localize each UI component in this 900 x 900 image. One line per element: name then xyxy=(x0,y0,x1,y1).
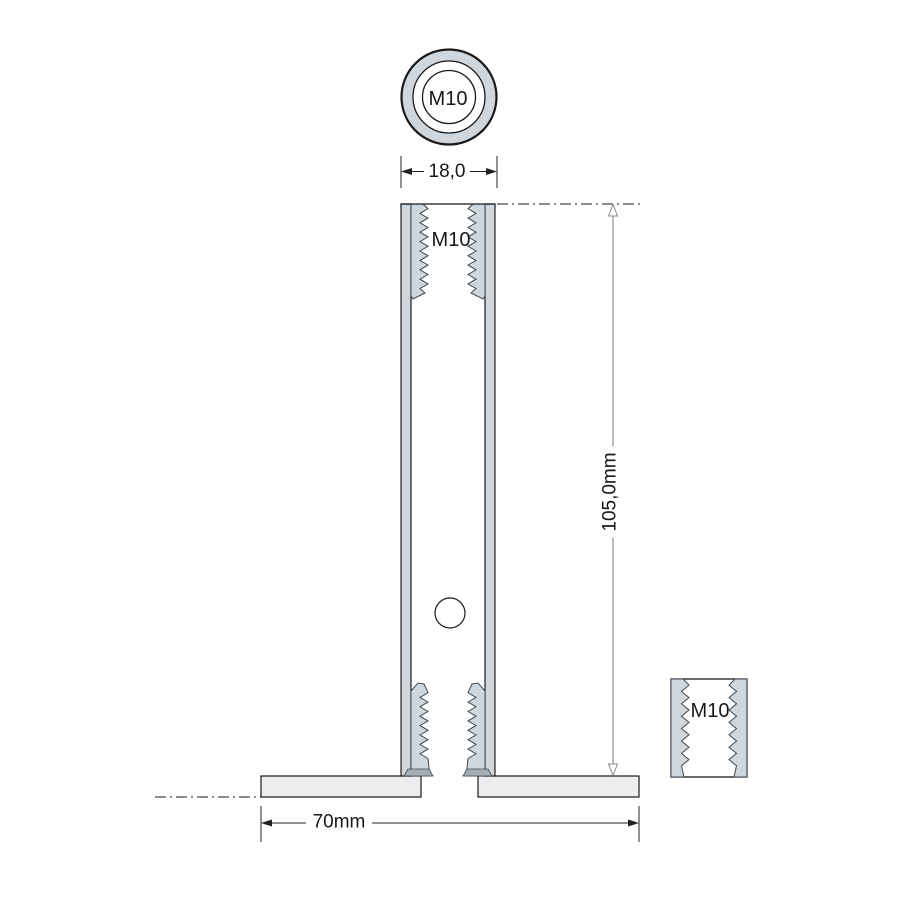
base-dim-value: 70mm xyxy=(313,812,366,833)
tube-wall-right xyxy=(485,204,495,776)
thread-bottom-left xyxy=(411,683,430,776)
base-dim-arrow-right-icon xyxy=(628,820,639,827)
diameter-dim-arrow-right-icon xyxy=(486,168,497,175)
height-dim-arrow-down-icon xyxy=(609,764,618,776)
height-dimension: 105,0mm xyxy=(600,205,621,776)
thread-bottom-right xyxy=(466,683,485,776)
technical-drawing-page: M10 18,0 M10 xyxy=(0,0,900,900)
thread-top-left xyxy=(411,204,428,299)
diameter-dimension: 18,0 xyxy=(401,156,497,188)
side-view: M10 xyxy=(155,204,643,797)
cross-hole xyxy=(435,598,465,628)
diameter-dim-value: 18,0 xyxy=(429,161,466,182)
thread-foot-left xyxy=(404,769,433,776)
detail-thread-label: M10 xyxy=(691,700,730,722)
diameter-dim-arrow-left-icon xyxy=(401,168,412,175)
side-view-thread-label: M10 xyxy=(432,229,471,251)
base-plate-right xyxy=(478,776,639,797)
base-plate-left xyxy=(261,776,421,797)
thread-top-right xyxy=(468,204,485,299)
standoff-drawing: M10 18,0 M10 xyxy=(0,0,900,900)
detail-view: M10 xyxy=(671,679,747,777)
thread-foot-right xyxy=(463,769,492,776)
height-dim-arrow-up-icon xyxy=(609,205,618,217)
base-width-dimension: 70mm xyxy=(261,806,639,842)
base-dim-arrow-left-icon xyxy=(261,820,272,827)
tube-wall-left xyxy=(401,204,411,776)
top-view-thread-label: M10 xyxy=(429,88,468,110)
top-view: M10 xyxy=(402,50,497,145)
height-dim-value: 105,0mm xyxy=(600,452,621,531)
